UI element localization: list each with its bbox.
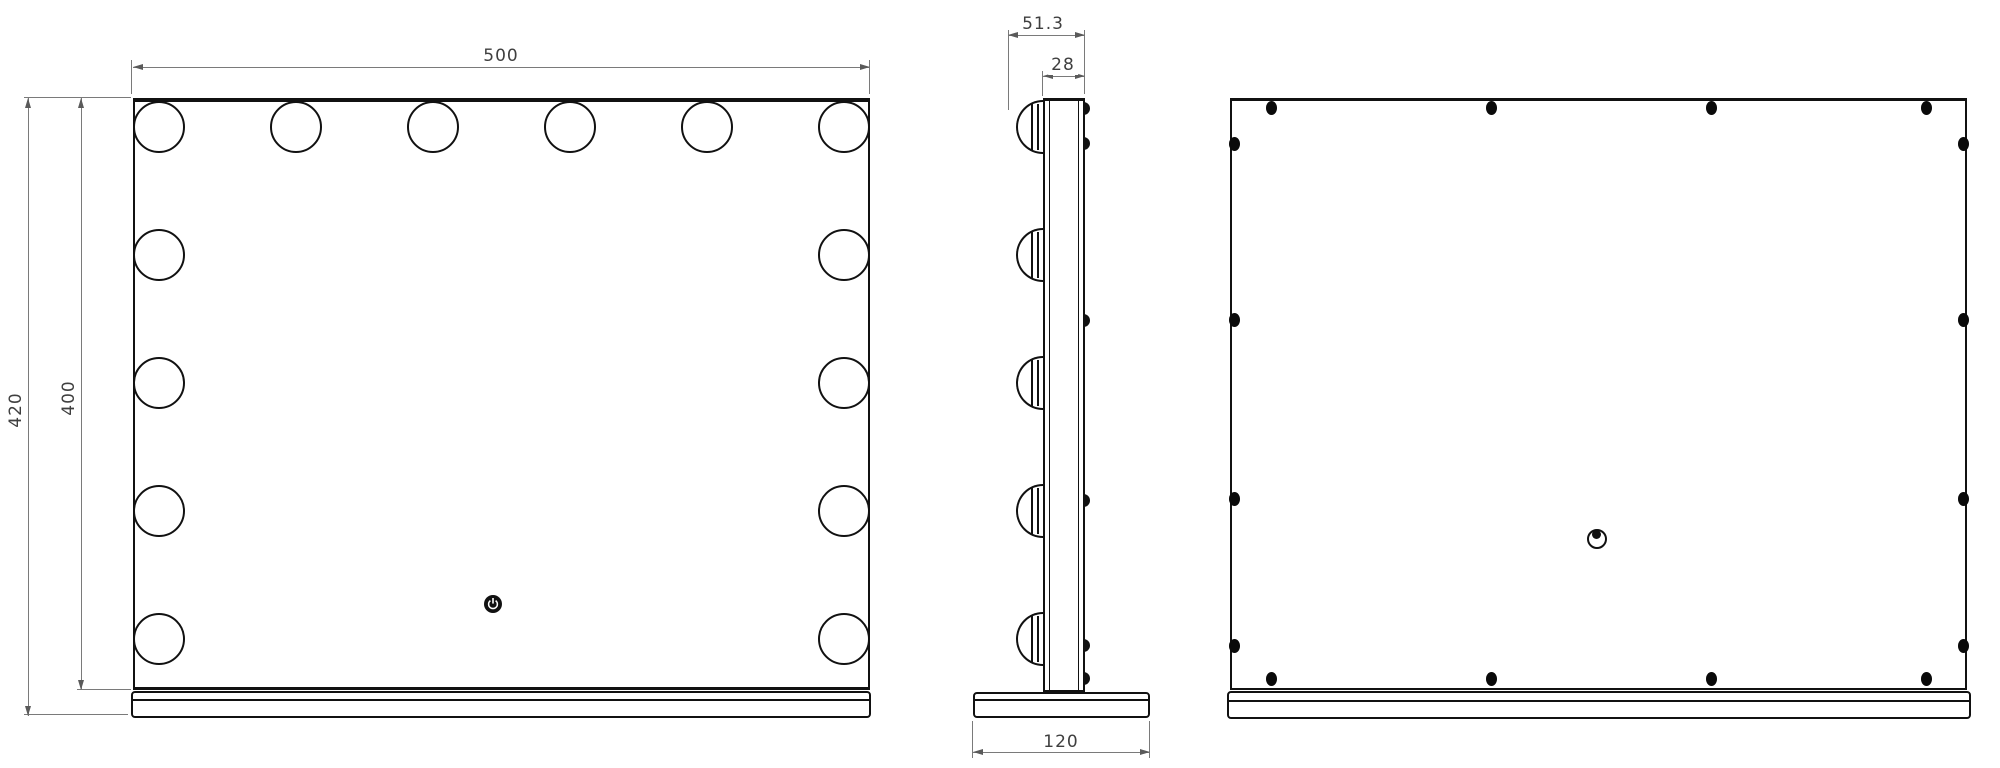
screw-dot xyxy=(1229,639,1240,653)
dim-panel-depth-label: 28 xyxy=(1048,55,1078,75)
bulb-socket-line xyxy=(1037,616,1039,662)
dim-400-arrow-top xyxy=(78,98,84,108)
light-bulb-side xyxy=(1016,356,1043,410)
screw-dot xyxy=(1706,672,1717,686)
side-panel-inner-line-left xyxy=(1049,100,1050,690)
dim-420-arrow-top xyxy=(25,98,31,108)
bulb-socket-line xyxy=(1037,232,1039,278)
bulb-socket-line xyxy=(1037,104,1039,150)
bulb-socket-line xyxy=(1031,360,1033,406)
back-view-base xyxy=(1227,691,1971,719)
front-view-base xyxy=(131,691,871,718)
dim-513-ext-right xyxy=(1084,30,1085,94)
light-bulb xyxy=(818,101,870,153)
light-bulb xyxy=(818,485,870,537)
dim-400-arrow-bottom xyxy=(78,680,84,690)
light-bulb xyxy=(681,101,733,153)
screw-dot xyxy=(1229,492,1240,506)
dim-front-width-label: 500 xyxy=(480,46,521,66)
dim-mirror-height-label: 400 xyxy=(59,377,79,418)
light-bulb xyxy=(818,613,870,665)
screw-dot xyxy=(1921,672,1932,686)
side-view-base xyxy=(973,692,1150,718)
light-bulb xyxy=(133,485,185,537)
dim-overall-height-label: 420 xyxy=(6,389,26,430)
bulb-socket-line xyxy=(1031,104,1033,150)
screw-dot xyxy=(1486,101,1497,115)
dim-420-line xyxy=(28,98,29,716)
dim-500-ext-left xyxy=(131,60,132,94)
light-bulb-side xyxy=(1016,100,1043,154)
dim-513-arrow-left xyxy=(1008,32,1018,38)
screw-dot xyxy=(1958,639,1969,653)
screw-dot xyxy=(1229,137,1240,151)
front-base-inner-line xyxy=(133,699,869,701)
bulb-socket-line xyxy=(1037,488,1039,534)
screw-bump-side xyxy=(1083,314,1090,327)
screw-dot xyxy=(1229,313,1240,327)
screw-dot xyxy=(1486,672,1497,686)
dim-513-ext-left xyxy=(1008,30,1009,110)
dim-500-arrow-left xyxy=(133,64,143,70)
screw-bump-side xyxy=(1083,672,1090,685)
hanging-hole-dot xyxy=(1592,530,1601,539)
dim-overall-depth-label: 51.3 xyxy=(1019,14,1067,34)
bulb-socket-line xyxy=(1031,488,1033,534)
dim-400-line xyxy=(81,98,82,690)
dim-400-ext-bottom xyxy=(77,689,131,690)
light-bulb-side xyxy=(1016,612,1043,666)
light-bulb xyxy=(133,101,185,153)
light-bulb xyxy=(544,101,596,153)
dim-500-arrow-right xyxy=(860,64,870,70)
power-button-icon xyxy=(484,595,502,613)
light-bulb xyxy=(270,101,322,153)
light-bulb xyxy=(133,357,185,409)
back-view-panel xyxy=(1230,98,1967,690)
dim-513-arrow-right xyxy=(1075,32,1085,38)
back-base-inner-line xyxy=(1229,700,1969,702)
screw-bump-side xyxy=(1083,137,1090,150)
dim-500-line xyxy=(133,67,870,68)
light-bulb xyxy=(818,357,870,409)
side-panel-inner-line-right xyxy=(1078,100,1079,690)
light-bulb xyxy=(407,101,459,153)
screw-dot xyxy=(1266,101,1277,115)
light-bulb-side xyxy=(1016,484,1043,538)
light-bulb xyxy=(818,229,870,281)
screw-dot xyxy=(1266,672,1277,686)
power-icon xyxy=(484,595,502,613)
screw-dot xyxy=(1958,137,1969,151)
screw-dot xyxy=(1958,313,1969,327)
dim-420-ext-bottom xyxy=(24,714,128,715)
screw-dot xyxy=(1921,101,1932,115)
screw-bump-side xyxy=(1083,102,1090,115)
screw-dot xyxy=(1958,492,1969,506)
screw-bump-side xyxy=(1083,494,1090,507)
dim-420-arrow-bottom xyxy=(25,706,31,716)
screw-bump-side xyxy=(1083,639,1090,652)
dim-120-arrow-right xyxy=(1140,749,1150,755)
dim-base-depth-label: 120 xyxy=(1040,732,1081,752)
dim-513-line xyxy=(1008,35,1085,36)
dim-120-line xyxy=(973,752,1150,753)
light-bulb xyxy=(133,229,185,281)
bulb-socket-line xyxy=(1031,232,1033,278)
bulb-socket-line xyxy=(1037,360,1039,406)
side-base-inner-line xyxy=(975,699,1148,701)
light-bulb-side xyxy=(1016,228,1043,282)
dim-120-arrow-left xyxy=(973,749,983,755)
light-bulb xyxy=(133,613,185,665)
bulb-socket-line xyxy=(1031,616,1033,662)
drawing-canvas: 500 420 400 51.3 28 120 xyxy=(0,0,2000,768)
screw-dot xyxy=(1706,101,1717,115)
